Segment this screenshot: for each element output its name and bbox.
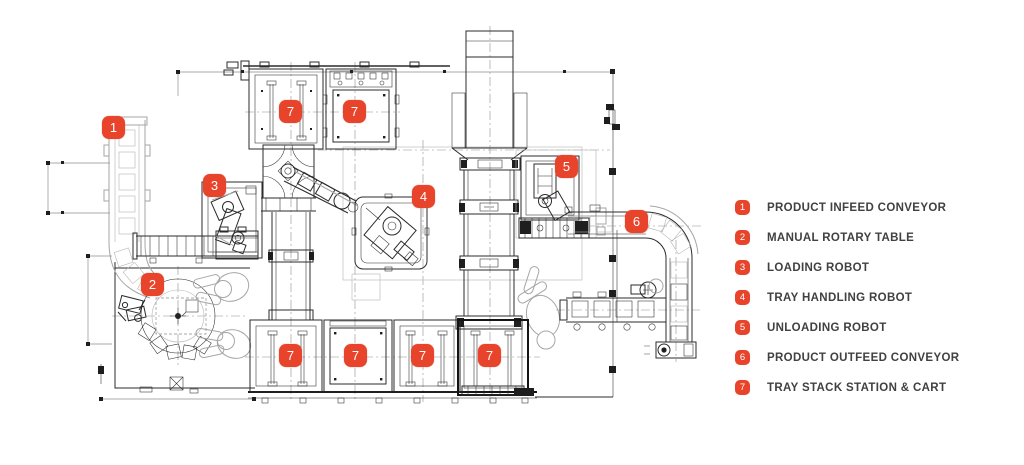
callout-marker-2: 2	[141, 273, 164, 296]
callout-marker-7b: 7	[343, 100, 366, 123]
legend-number-badge: 3	[735, 260, 750, 275]
callout-marker-3: 3	[203, 174, 226, 197]
legend-item-label: PRODUCT OUTFEED CONVEYOR	[767, 352, 959, 364]
legend-item-label: UNLOADING ROBOT	[767, 322, 887, 334]
legend-number-badge: 7	[735, 380, 750, 395]
legend-number-badge: 1	[735, 200, 750, 215]
cell-boundary	[115, 262, 613, 397]
legend-number-badge: 4	[735, 290, 750, 305]
legend-item-label: MANUAL ROTARY TABLE	[767, 232, 914, 244]
callout-marker-6: 6	[625, 210, 648, 233]
legend-number-badge: 6	[735, 350, 750, 365]
legend-item-4: 4 TRAY HANDLING ROBOT	[735, 290, 959, 305]
sensor-post-icon	[604, 104, 620, 130]
callout-marker-7c: 7	[279, 344, 302, 367]
legend-item-label: TRAY HANDLING ROBOT	[767, 292, 912, 304]
callout-marker-7e: 7	[411, 344, 434, 367]
legend: 1 PRODUCT INFEED CONVEYOR 2 MANUAL ROTAR…	[735, 200, 959, 410]
legend-item-label: PRODUCT INFEED CONVEYOR	[767, 202, 946, 214]
legend-number-badge: 2	[735, 230, 750, 245]
legend-item-7: 7 TRAY STACK STATION & CART	[735, 380, 959, 395]
floor-plan-drawing	[0, 0, 715, 465]
legend-number-badge: 5	[735, 320, 750, 335]
callout-marker-1: 1	[102, 116, 125, 139]
callout-marker-7a: 7	[279, 100, 302, 123]
callout-marker-7f: 7	[478, 344, 501, 367]
callout-marker-5: 5	[555, 155, 578, 178]
transfer-station-drawing	[261, 145, 358, 213]
legend-item-label: TRAY STACK STATION & CART	[767, 382, 946, 394]
machine-layout-page: { "colors": { "accent": "#E8432B", "text…	[0, 0, 1024, 465]
legend-item-5: 5 UNLOADING ROBOT	[735, 320, 959, 335]
legend-item-1: 1 PRODUCT INFEED CONVEYOR	[735, 200, 959, 215]
operator-figure	[192, 268, 252, 306]
legend-item-label: LOADING ROBOT	[767, 262, 869, 274]
legend-item-6: 6 PRODUCT OUTFEED CONVEYOR	[735, 350, 959, 365]
operator-figure	[516, 265, 564, 349]
legend-item-3: 3 LOADING ROBOT	[735, 260, 959, 275]
top-frame	[224, 61, 450, 80]
callout-marker-4: 4	[412, 185, 435, 208]
callout-marker-7d: 7	[344, 344, 367, 367]
legend-item-2: 2 MANUAL ROTARY TABLE	[735, 230, 959, 245]
